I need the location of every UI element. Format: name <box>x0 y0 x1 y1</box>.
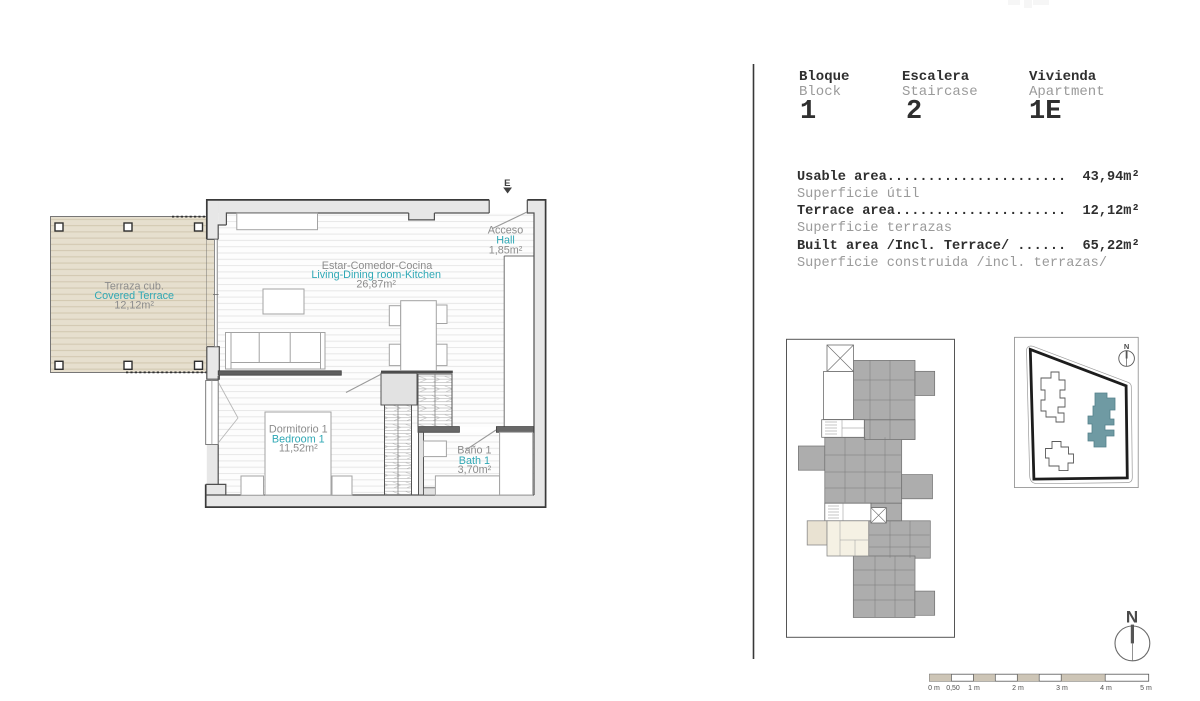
svg-text:E: E <box>504 178 510 189</box>
svg-text:12,12m²: 12,12m² <box>114 299 154 311</box>
svg-text:5 m: 5 m <box>1140 685 1152 692</box>
svg-text:3,70m²: 3,70m² <box>458 464 492 476</box>
svg-text:26,87m²: 26,87m² <box>356 278 396 290</box>
svg-text:1,85m²: 1,85m² <box>489 245 523 257</box>
svg-text:N: N <box>1126 608 1138 627</box>
svg-text:11,52m²: 11,52m² <box>279 442 318 454</box>
svg-text:N: N <box>1124 342 1129 351</box>
svg-text:0,50: 0,50 <box>946 685 960 692</box>
svg-text:4 m: 4 m <box>1100 685 1112 692</box>
svg-text:0 m: 0 m <box>928 685 940 692</box>
svg-text:3 m: 3 m <box>1056 685 1068 692</box>
svg-text:2 m: 2 m <box>1012 685 1024 692</box>
svg-text:1 m: 1 m <box>968 685 980 692</box>
